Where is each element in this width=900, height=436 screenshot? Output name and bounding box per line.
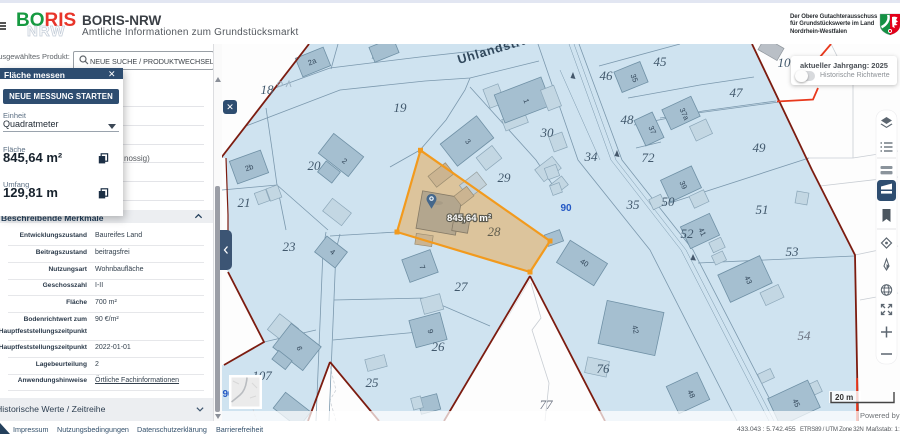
svg-text:76: 76 [597,361,611,376]
svg-text:49: 49 [753,140,767,155]
svg-text:50: 50 [662,194,676,209]
svg-text:48: 48 [621,112,635,127]
svg-text:52: 52 [681,226,695,241]
svg-text:45: 45 [654,54,668,69]
svg-text:23: 23 [283,239,297,254]
svg-text:19: 19 [394,100,408,115]
svg-text:25: 25 [366,375,380,390]
svg-text:28: 28 [488,224,502,239]
svg-text:47: 47 [730,85,744,100]
svg-text:Powered by Esri: Powered by Esri [860,411,900,420]
svg-text:845,64 m²: 845,64 m² [447,213,491,224]
svg-text:53: 53 [786,244,800,259]
svg-text:90: 90 [560,203,572,214]
svg-text:21: 21 [238,195,251,210]
svg-text:27: 27 [455,279,469,294]
svg-text:34: 34 [584,149,599,164]
svg-text:10: 10 [778,55,792,70]
svg-text:20 m: 20 m [835,393,853,402]
svg-text:20: 20 [308,158,322,173]
svg-text:46: 46 [600,68,614,83]
svg-text:51: 51 [756,202,769,217]
svg-text:54: 54 [798,328,812,343]
svg-text:29: 29 [498,170,512,185]
svg-text:77: 77 [540,397,554,412]
svg-text:30: 30 [540,125,555,140]
svg-text:35: 35 [626,197,641,212]
svg-text:18: 18 [261,82,275,97]
svg-text:72: 72 [642,150,656,165]
svg-text:26: 26 [432,339,446,354]
